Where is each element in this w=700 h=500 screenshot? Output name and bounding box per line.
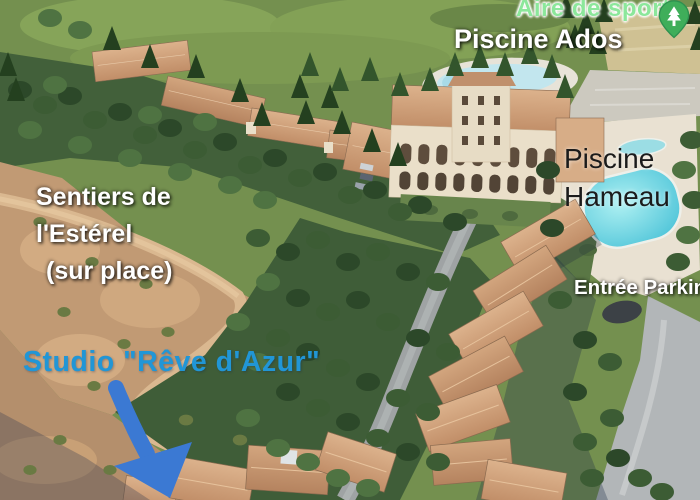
park-pin-icon [652,0,696,45]
label-aire-de-sport: Aire de sport [516,0,671,23]
label-entree-parking: Entrée Parking [574,276,700,300]
label-sentiers-esterel: Sentiers de l'Estérel (sur place) [36,179,172,290]
label-studio-reve-dazur: Studio "Rêve d'Azur" [23,346,320,379]
label-piscine-hameau: Piscine Hameau [564,140,670,216]
aerial-map-image: Aire de sport Piscine Ados Piscine Hamea… [0,0,700,500]
label-piscine-ados: Piscine Ados [454,24,623,55]
down-arrow-icon [100,380,210,500]
